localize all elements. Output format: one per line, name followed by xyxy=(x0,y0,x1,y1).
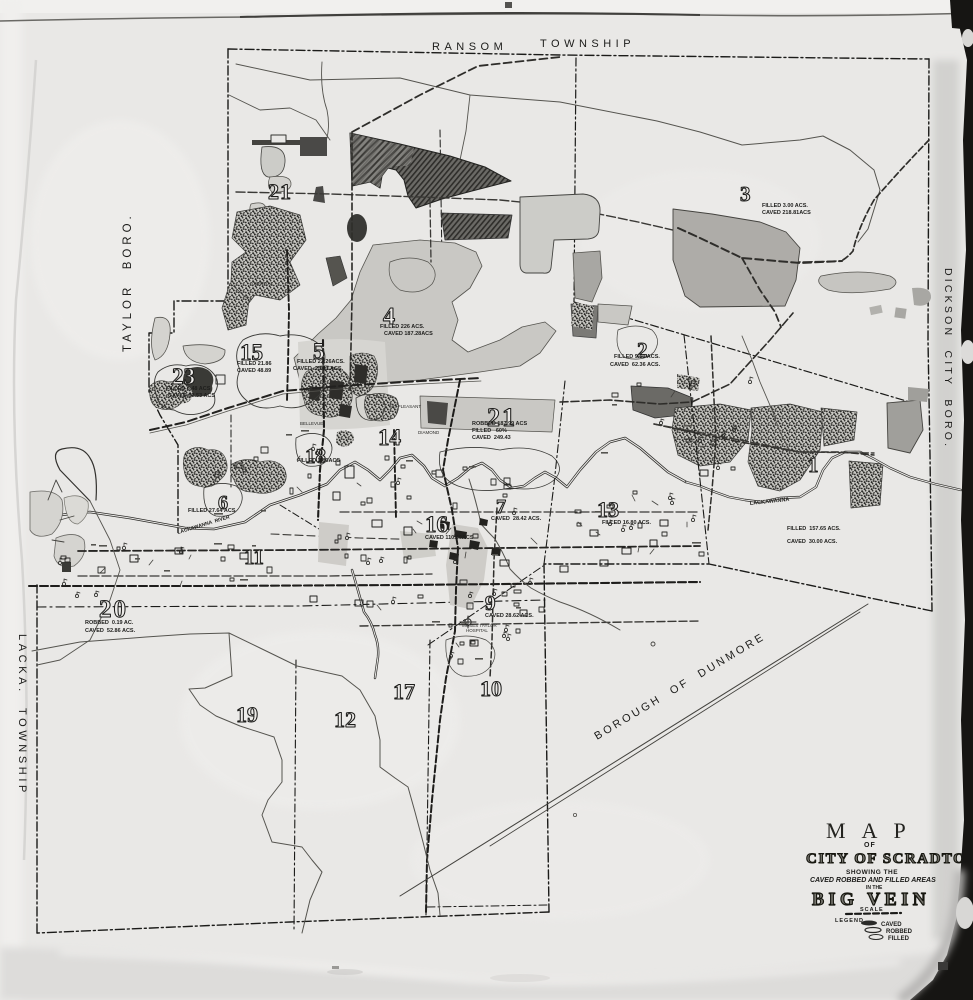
svg-text:ROBBED 187.99 ACS: ROBBED 187.99 ACS xyxy=(472,421,527,427)
svg-text:FILLED 2.80ACS: FILLED 2.80ACS xyxy=(297,458,340,464)
svg-text:CITY OF SCRADTON: CITY OF SCRADTON xyxy=(806,851,973,867)
svg-text:FILLED 9.50 ACS.: FILLED 9.50 ACS. xyxy=(614,354,660,360)
svg-text:17: 17 xyxy=(393,679,415,704)
svg-text:TOWNSHIP: TOWNSHIP xyxy=(540,38,635,50)
svg-text:12: 12 xyxy=(334,707,356,732)
svg-text:FILLED 6.48 ACS: FILLED 6.48 ACS xyxy=(166,386,211,392)
svg-text:ROBBED: ROBBED xyxy=(886,929,913,935)
svg-text:CAVED 82.53 ACS: CAVED 82.53 ACS xyxy=(168,393,215,399)
svg-text:21: 21 xyxy=(268,179,292,204)
svg-text:20: 20 xyxy=(99,596,128,623)
svg-text:CAVED ROBBED AND FILLED AREAS: CAVED ROBBED AND FILLED AREAS xyxy=(810,877,936,884)
svg-text:FILLED 27.64 ACS: FILLED 27.64 ACS xyxy=(188,508,236,514)
svg-text:SCALE: SCALE xyxy=(860,907,884,913)
svg-text:14: 14 xyxy=(378,425,402,450)
svg-text:19: 19 xyxy=(236,702,258,727)
svg-text:7: 7 xyxy=(496,496,506,518)
svg-text:MAP: MAP xyxy=(826,818,922,843)
svg-text:MT PLEASANT: MT PLEASANT xyxy=(390,404,421,409)
svg-text:DICKSON CITY BORO.: DICKSON CITY BORO. xyxy=(942,268,954,449)
svg-text:CAVED 187.28ACS: CAVED 187.28ACS xyxy=(384,331,433,337)
svg-text:9: 9 xyxy=(485,591,496,615)
svg-text:CAVED 23.41 ACS.: CAVED 23.41 ACS. xyxy=(293,366,344,372)
svg-text:FILLED 157.65 ACS.: FILLED 157.65 ACS. xyxy=(787,526,841,532)
svg-text:FILLED 3.00 ACS.: FILLED 3.00 ACS. xyxy=(762,203,808,209)
svg-text:BIG VEIN: BIG VEIN xyxy=(812,889,930,909)
svg-text:CAVED 62.36 ACS.: CAVED 62.36 ACS. xyxy=(610,362,661,368)
svg-text:10: 10 xyxy=(480,676,502,701)
svg-text:CAVED 52.86 ACS.: CAVED 52.86 ACS. xyxy=(85,628,136,634)
svg-text:CENTRAL: CENTRAL xyxy=(252,281,274,286)
svg-text:LEGEND: LEGEND xyxy=(835,918,864,924)
svg-text:CAVED: CAVED xyxy=(881,922,902,928)
svg-text:TAYLOR BORO.: TAYLOR BORO. xyxy=(122,212,134,352)
svg-text:CAVED 48.89: CAVED 48.89 xyxy=(237,368,271,374)
svg-text:BELLEVUE: BELLEVUE xyxy=(300,421,323,426)
svg-text:FILLED 21.86: FILLED 21.86 xyxy=(237,361,272,367)
svg-text:18: 18 xyxy=(305,444,326,468)
svg-text:HOSPITAL: HOSPITAL xyxy=(466,628,488,633)
svg-text:1: 1 xyxy=(808,453,819,477)
svg-text:SHOWING THE: SHOWING THE xyxy=(846,869,898,876)
svg-text:FILLED 226 ACS.: FILLED 226 ACS. xyxy=(380,324,425,330)
svg-text:RANSOM: RANSOM xyxy=(432,41,507,53)
svg-text:FILLED 60%: FILLED 60% xyxy=(472,428,507,434)
svg-text:ROBBED 0.19 AC.: ROBBED 0.19 AC. xyxy=(85,620,134,626)
svg-text:CAVED 28.42 ACS.: CAVED 28.42 ACS. xyxy=(491,516,542,522)
svg-text:DIAMOND: DIAMOND xyxy=(418,430,440,435)
svg-text:16: 16 xyxy=(425,512,448,537)
svg-text:13: 13 xyxy=(597,497,619,522)
svg-text:11: 11 xyxy=(244,545,264,569)
svg-text:FILLED: FILLED xyxy=(888,936,910,942)
svg-text:FILLED 22.26ACS.: FILLED 22.26ACS. xyxy=(297,359,345,365)
svg-text:CAVED 30.00 ACS.: CAVED 30.00 ACS. xyxy=(787,539,838,545)
svg-text:OF: OF xyxy=(864,842,876,849)
svg-text:3: 3 xyxy=(740,182,751,206)
svg-text:CAVED 110.60ACS: CAVED 110.60ACS xyxy=(425,535,474,541)
svg-text:LACKA. TOWNSHIP: LACKA. TOWNSHIP xyxy=(16,634,28,796)
svg-text:CAVED 218.81ACS: CAVED 218.81ACS xyxy=(762,210,811,216)
svg-text:CAVED 249.43: CAVED 249.43 xyxy=(472,435,511,441)
